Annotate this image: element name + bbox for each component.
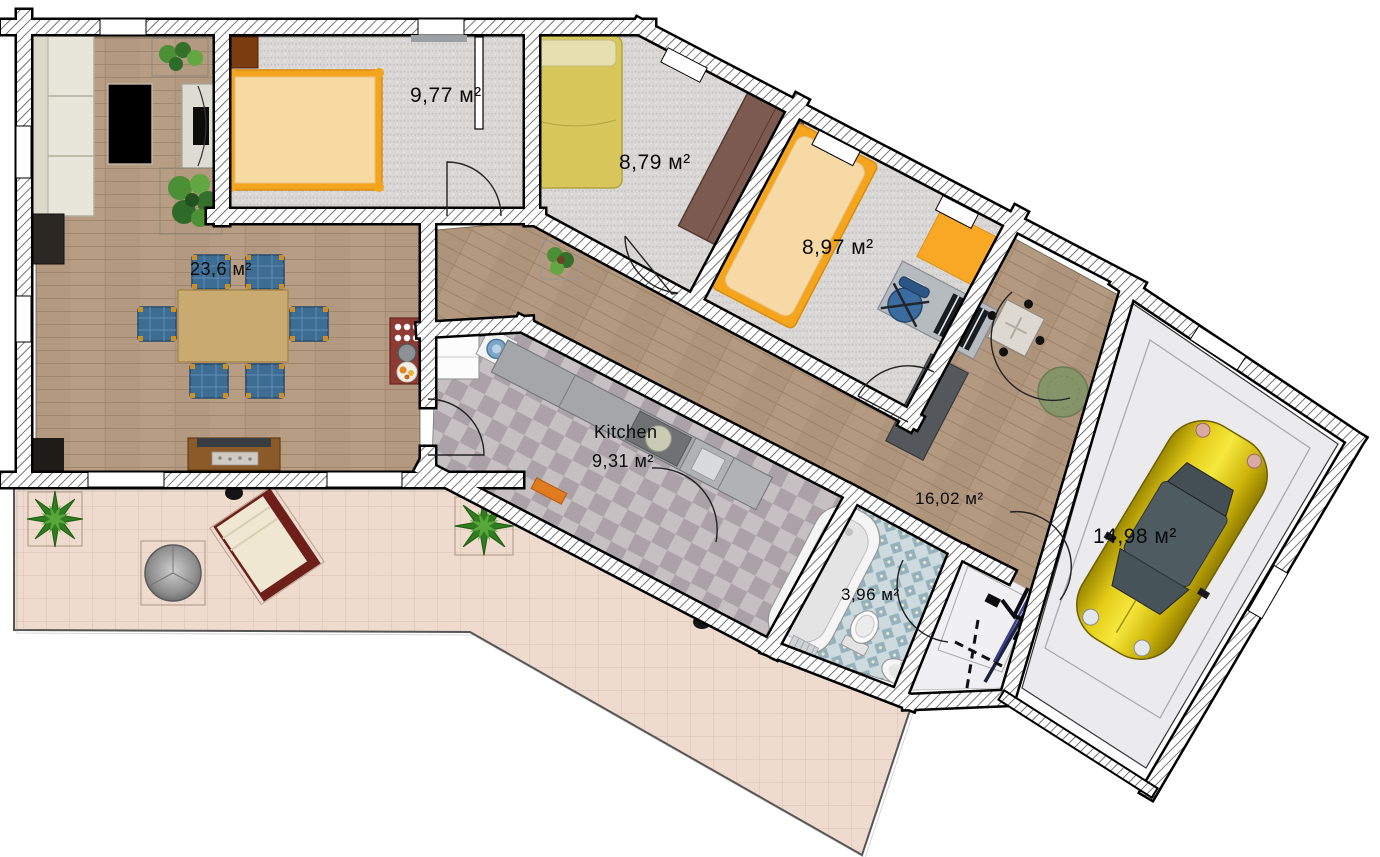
closet-wall bbox=[475, 37, 483, 129]
floor-plan-canvas: 9,77 м² 8,79 м² 8,97 м² 23,6 м² Kitchen … bbox=[0, 0, 1380, 857]
label-bedroom-middle: 8,79 м² bbox=[619, 151, 691, 175]
fireplace-sideboard[interactable] bbox=[188, 438, 280, 470]
terrace-plant-left[interactable] bbox=[27, 491, 83, 547]
floor-plan-svg bbox=[0, 0, 1380, 857]
label-garage: 14,98 м² bbox=[1093, 525, 1177, 549]
round-rug[interactable] bbox=[1038, 367, 1088, 417]
label-bathroom: 3,96 м² bbox=[841, 585, 900, 605]
label-bedroom-top: 9,77 м² bbox=[410, 84, 482, 108]
coffee-table[interactable] bbox=[108, 84, 152, 164]
double-bed-yellow[interactable] bbox=[528, 36, 622, 188]
fridge[interactable] bbox=[433, 335, 479, 379]
label-kitchen-name: Kitchen bbox=[594, 422, 658, 443]
dining-table[interactable] bbox=[178, 290, 288, 362]
label-hallway: 16,02 м² bbox=[915, 489, 984, 509]
label-kitchen-area: 9,31 м² bbox=[592, 451, 654, 472]
double-bed-orange[interactable] bbox=[226, 68, 384, 192]
sofa[interactable] bbox=[28, 36, 94, 216]
label-living-room: 23,6 м² bbox=[190, 259, 252, 280]
label-bedroom-right: 8,97 м² bbox=[802, 236, 874, 260]
